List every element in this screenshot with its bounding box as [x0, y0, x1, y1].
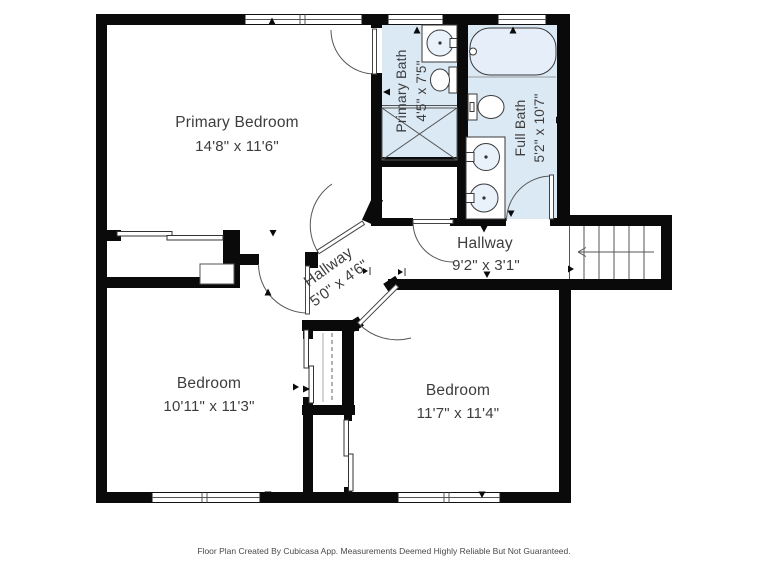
primary-bedroom-dimensions: 14'8" x 11'6": [195, 138, 279, 155]
stairs-icon: [570, 226, 655, 279]
faucet-icon: [466, 194, 474, 203]
window: [388, 15, 443, 25]
stairs-direction-arrow: [578, 248, 654, 257]
sliding-door-panel: [349, 454, 354, 491]
toilet-icon: [431, 69, 450, 91]
closet-shelf: [200, 264, 234, 284]
bedroom-right-label: Bedroom: [426, 382, 490, 399]
bathtub-icon: [470, 28, 556, 75]
hallway-upper-dimensions: 9'2" x 3'1": [452, 257, 520, 274]
door-linen-closet: [413, 220, 453, 263]
sliding-door-panel: [167, 236, 223, 241]
sliding-door-panel: [344, 420, 349, 456]
faucet-icon: [450, 39, 457, 48]
full-bath-dimensions: 5'2" x 10'7": [532, 94, 547, 163]
floor-plan-page: Primary Bedroom 14'8" x 11'6" Primary Ba…: [0, 0, 768, 576]
floor-plan-drawing: Primary Bedroom 14'8" x 11'6" Primary Ba…: [0, 0, 768, 576]
sliding-door-panel: [304, 330, 309, 368]
full-bath-label: Full Bath: [512, 99, 528, 156]
primary-bath-label: Primary Bath: [393, 49, 409, 132]
door-primary-bath: [331, 29, 377, 74]
door-primary-bedroom: [310, 184, 364, 254]
primary-bedroom-label: Primary Bedroom: [175, 114, 299, 131]
hallway-upper-label: Hallway: [457, 235, 513, 252]
bedroom-left-label: Bedroom: [177, 375, 241, 392]
window: [498, 15, 546, 25]
toilet-icon: [478, 96, 504, 119]
primary-bath-dimensions: 4'5" x 7'5": [414, 60, 429, 121]
door-bedroom-left: [259, 264, 310, 314]
sliding-door-panel: [309, 366, 314, 403]
bedroom-left-dimensions: 10'11" x 11'3": [163, 398, 254, 415]
sliding-door-panel: [117, 232, 172, 237]
toilet-tank: [449, 67, 457, 93]
tub-faucet-icon: [461, 46, 468, 57]
window: [398, 493, 500, 503]
window: [152, 493, 260, 503]
faucet-icon: [466, 153, 474, 162]
door-bedroom-right: [358, 284, 411, 339]
window: [245, 15, 362, 25]
bedroom-right-dimensions: 11'7" x 11'4": [417, 405, 500, 422]
footer-disclaimer: Floor Plan Created By Cubicasa App. Meas…: [197, 546, 570, 556]
